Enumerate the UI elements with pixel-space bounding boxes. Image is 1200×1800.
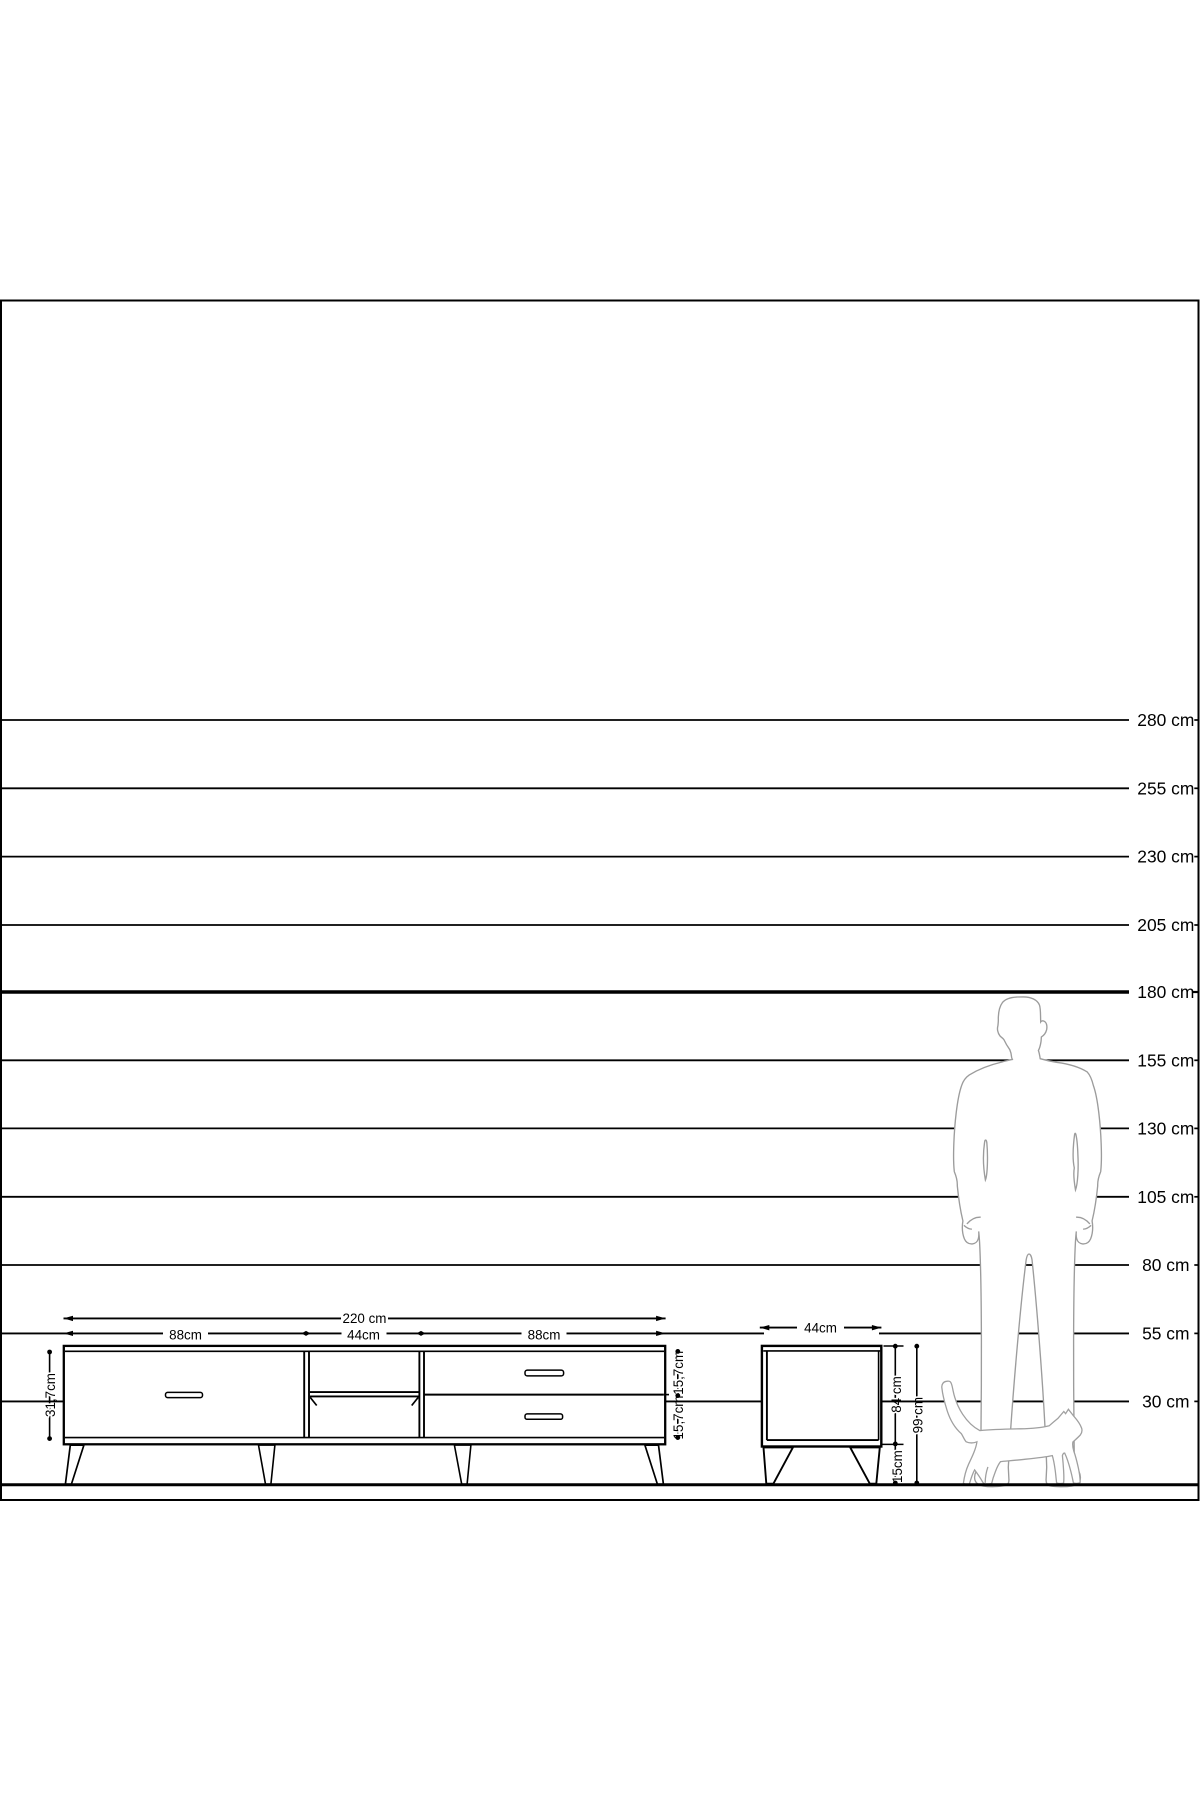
svg-text:205 cm: 205 cm bbox=[1137, 915, 1194, 935]
svg-text:30 cm: 30 cm bbox=[1142, 1391, 1189, 1411]
svg-text:44cm: 44cm bbox=[804, 1320, 837, 1335]
svg-text:255 cm: 255 cm bbox=[1137, 778, 1194, 798]
svg-text:15cm: 15cm bbox=[890, 1450, 905, 1483]
svg-text:130 cm: 130 cm bbox=[1137, 1118, 1194, 1138]
svg-text:180 cm: 180 cm bbox=[1137, 982, 1194, 1002]
svg-text:31,7cm: 31,7cm bbox=[43, 1373, 58, 1417]
svg-text:88cm: 88cm bbox=[528, 1328, 561, 1343]
svg-text:44cm: 44cm bbox=[347, 1328, 380, 1343]
svg-text:80 cm: 80 cm bbox=[1142, 1255, 1189, 1275]
svg-text:99 cm: 99 cm bbox=[911, 1397, 926, 1433]
svg-text:280 cm: 280 cm bbox=[1137, 710, 1194, 730]
svg-text:220 cm: 220 cm bbox=[343, 1311, 387, 1326]
svg-text:15,7cm: 15,7cm bbox=[671, 1351, 686, 1395]
svg-text:105 cm: 105 cm bbox=[1137, 1187, 1194, 1207]
svg-text:88cm: 88cm bbox=[169, 1328, 202, 1343]
svg-text:230 cm: 230 cm bbox=[1137, 847, 1194, 867]
svg-text:55 cm: 55 cm bbox=[1142, 1323, 1189, 1343]
svg-text:84 cm: 84 cm bbox=[889, 1376, 904, 1412]
svg-text:155 cm: 155 cm bbox=[1137, 1050, 1194, 1070]
